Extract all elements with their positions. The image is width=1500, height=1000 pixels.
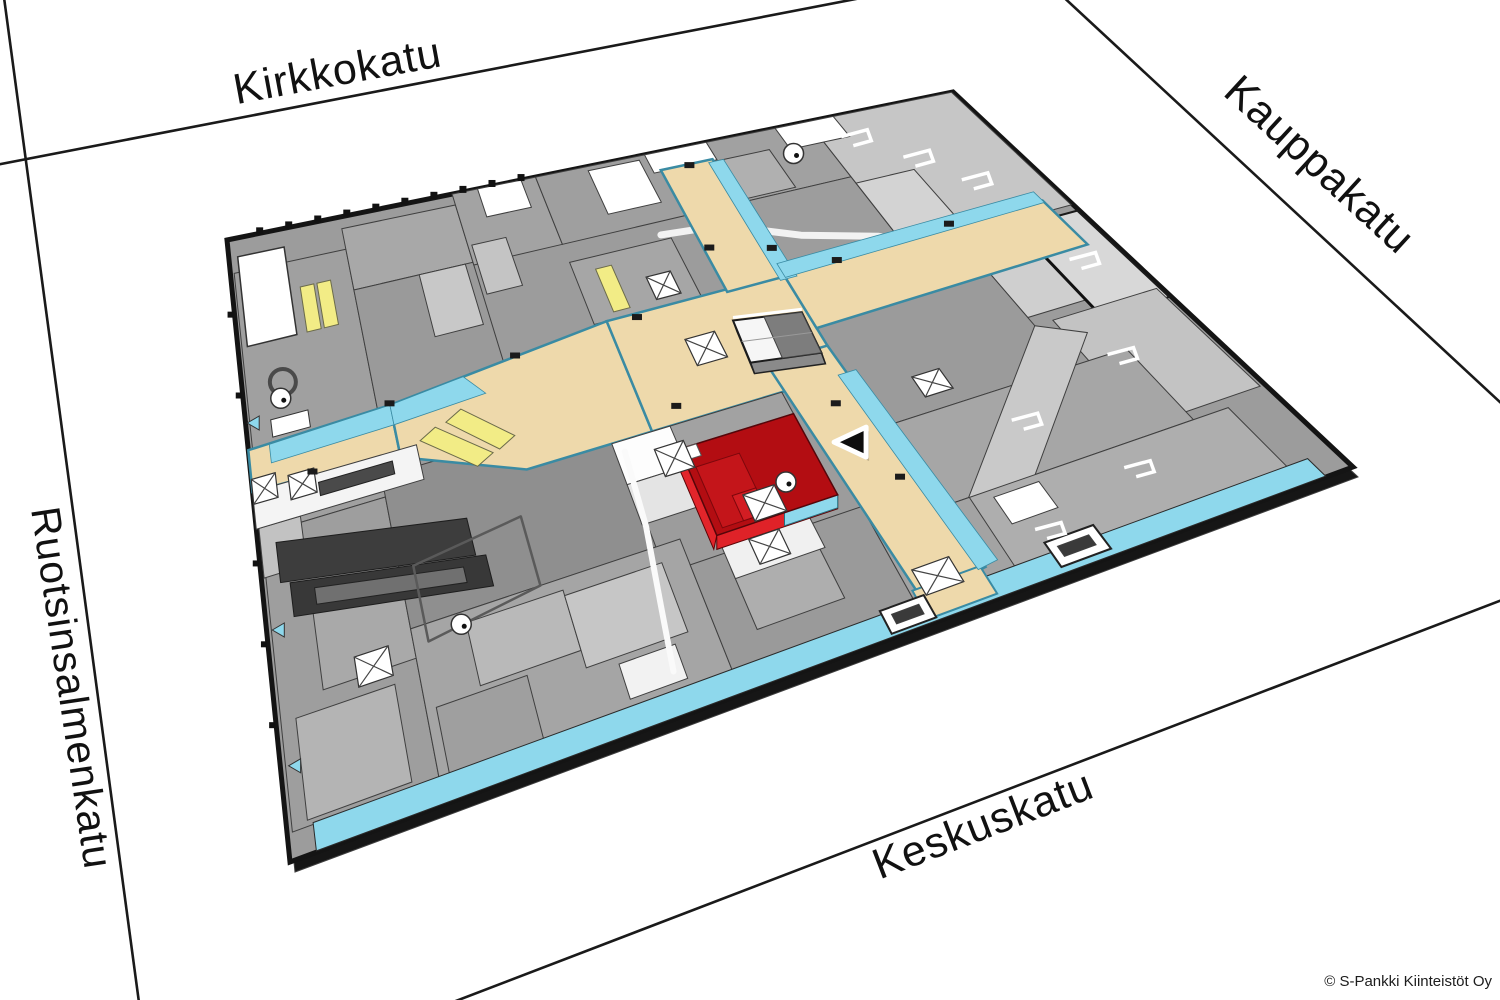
spiral-stair-icon (451, 614, 471, 634)
spiral-stair-icon (281, 398, 286, 403)
door-tick (632, 314, 642, 320)
door-tick (704, 245, 714, 251)
attribution-text: © S-Pankki Kiinteistöt Oy (1324, 973, 1492, 990)
door-tick (832, 257, 842, 263)
facade-notch (430, 192, 437, 199)
street-label-west: Ruotsinsalmenkatu (22, 504, 122, 872)
facade-notch (253, 560, 259, 566)
street-label-north: Kirkkokatu (229, 28, 445, 114)
facade-notch (314, 216, 321, 223)
mall-floorplan (227, 92, 1358, 872)
facade-notch (228, 312, 234, 318)
door-tick (307, 469, 317, 475)
street-label-south: Keskuskatu (866, 761, 1100, 889)
facade-notch (372, 204, 379, 211)
facade-notch (269, 722, 275, 728)
spiral-stair-icon (784, 144, 804, 164)
door-tick (385, 400, 395, 406)
facade-notch (518, 174, 525, 181)
spiral-stair-icon (794, 153, 799, 158)
facade-notch (261, 641, 267, 647)
facade-notch (488, 180, 495, 187)
facade-notch (256, 227, 263, 234)
door-tick (684, 162, 694, 168)
spiral-stair-icon (462, 624, 467, 629)
door-tick (767, 245, 777, 251)
floorplan-canvas: Kirkkokatu Kauppakatu Ruotsinsalmenkatu … (0, 0, 1500, 1000)
spiral-stair-icon (776, 472, 796, 492)
facade-notch (285, 221, 292, 228)
facade-notch (401, 198, 408, 205)
facade-notch (236, 393, 242, 399)
spiral-stair-icon (271, 388, 291, 408)
floorplan-map: Kirkkokatu Kauppakatu Ruotsinsalmenkatu … (0, 0, 1500, 1000)
spiral-stair-icon (786, 481, 791, 486)
door-tick (944, 221, 954, 227)
facade-notch (459, 186, 466, 193)
door-tick (510, 353, 520, 359)
door-tick (895, 474, 905, 480)
door-tick (831, 400, 841, 406)
facade-notch (343, 210, 350, 217)
door-tick (671, 403, 681, 409)
